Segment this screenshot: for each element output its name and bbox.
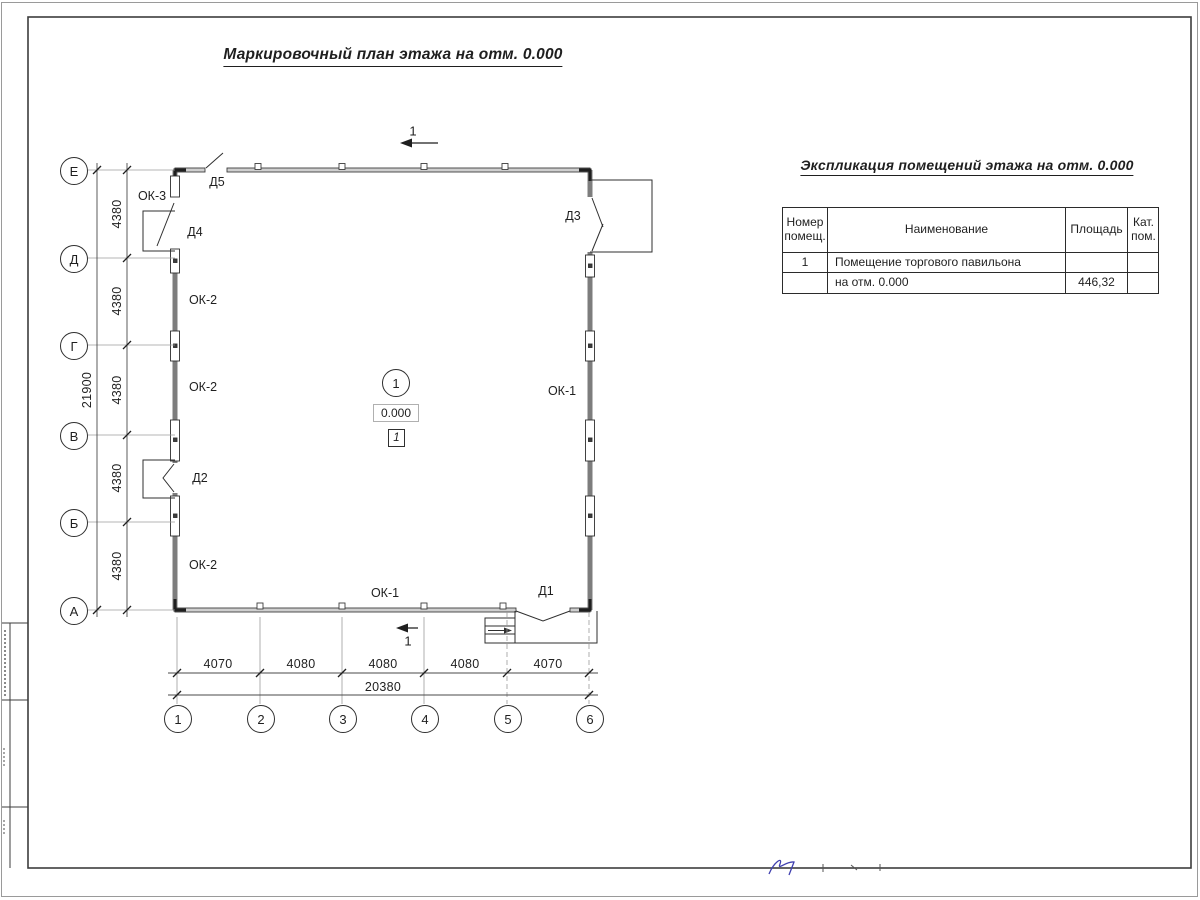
table-header-area: Площадь — [1066, 208, 1128, 253]
axis-label: 2 — [257, 713, 264, 726]
door-tag-d5: Д5 — [209, 175, 224, 189]
axis-label: 5 — [504, 713, 511, 726]
window-tag-ok2: ОК-2 — [189, 380, 217, 394]
room-number-bubble: 1 — [382, 369, 410, 397]
title-block-stamp — [2, 623, 28, 868]
axis-label: В — [70, 430, 79, 443]
table-header-name: Наименование — [828, 208, 1066, 253]
dimension-label: 4380 — [110, 551, 124, 580]
door-tag-d4: Д4 — [187, 225, 202, 239]
dimension-label: 4080 — [450, 657, 479, 671]
axis-label: 1 — [174, 713, 181, 726]
axis-bubble: 1 — [164, 705, 192, 733]
table-cell-name: на отм. 0.000 — [828, 273, 1066, 293]
table-header-room-number: Номер помещ. — [783, 208, 828, 253]
room-number: 1 — [392, 377, 399, 390]
table-cell-area: 446,32 — [1066, 273, 1128, 293]
axis-bubble: 3 — [329, 705, 357, 733]
dimension-label: 4080 — [286, 657, 315, 671]
elevation-mark: 0.000 — [373, 404, 419, 422]
axis-bubble: 2 — [247, 705, 275, 733]
axis-bubble: А — [60, 597, 88, 625]
table-header-category: Кат. пом. — [1128, 208, 1159, 253]
dimension-label: 4380 — [110, 463, 124, 492]
walls — [175, 168, 590, 612]
axis-label: 3 — [339, 713, 346, 726]
axis-bubble: Г — [60, 332, 88, 360]
window-tag-ok1: ОК-1 — [371, 586, 399, 600]
table-title: Экспликация помещений этажа на отм. 0.00… — [800, 157, 1133, 176]
dimension-total-label: 21900 — [80, 372, 94, 408]
axis-label: Д — [70, 253, 79, 266]
axis-bubble: 5 — [494, 705, 522, 733]
room-marker-box: 1 — [388, 429, 405, 447]
window-tag-ok1: ОК-1 — [548, 384, 576, 398]
axis-lines — [87, 170, 589, 704]
axis-label: 6 — [586, 713, 593, 726]
axis-bubble: Е — [60, 157, 88, 185]
dimension-label: 4380 — [110, 199, 124, 228]
table-cell-room-number: 1 — [783, 253, 828, 273]
dimension-label: 4070 — [533, 657, 562, 671]
drawing-sheet: Маркировочный план этажа на отм. 0.000 Е… — [0, 0, 1200, 900]
axis-bubble: 6 — [576, 705, 604, 733]
axis-label: А — [70, 605, 79, 618]
dimension-label: 4380 — [110, 375, 124, 404]
window-symbols — [171, 176, 595, 536]
dimension-total-label: 20380 — [365, 680, 401, 694]
window-tag-ok3: ОК-3 — [138, 189, 166, 203]
axis-bubble: В — [60, 422, 88, 450]
axis-label: 4 — [421, 713, 428, 726]
sheet-frame — [2, 3, 1198, 897]
table-cell-name: Помещение торгового павильона — [828, 253, 1066, 273]
axis-label: Б — [70, 517, 79, 530]
window-tag-ok2: ОК-2 — [189, 558, 217, 572]
explication-table: Номер помещ. Наименование Площадь Кат. п… — [782, 207, 1159, 294]
door-leaves — [157, 153, 603, 621]
linework-svg — [0, 0, 1200, 900]
axis-label: Г — [70, 340, 77, 353]
window-tag-ok2: ОК-2 — [189, 293, 217, 307]
dimension-label: 4080 — [368, 657, 397, 671]
dimension-label: 4380 — [110, 286, 124, 315]
section-mark-label: 1 — [409, 124, 416, 139]
table-cell-area — [1066, 253, 1128, 273]
dimension-lines — [93, 163, 598, 699]
section-mark-label: 1 — [404, 634, 411, 649]
table-cell-category — [1128, 273, 1159, 293]
drawing-title: Маркировочный план этажа на отм. 0.000 — [223, 46, 562, 67]
axis-label: Е — [70, 165, 79, 178]
table-cell-category — [1128, 253, 1159, 273]
axis-bubble: 4 — [411, 705, 439, 733]
door-tag-d2: Д2 — [192, 471, 207, 485]
dimension-label: 4070 — [203, 657, 232, 671]
table-cell-room-number — [783, 273, 828, 293]
axis-bubble: Д — [60, 245, 88, 273]
door-tag-d3: Д3 — [565, 209, 580, 223]
door-tag-d1: Д1 — [538, 584, 553, 598]
axis-bubble: Б — [60, 509, 88, 537]
